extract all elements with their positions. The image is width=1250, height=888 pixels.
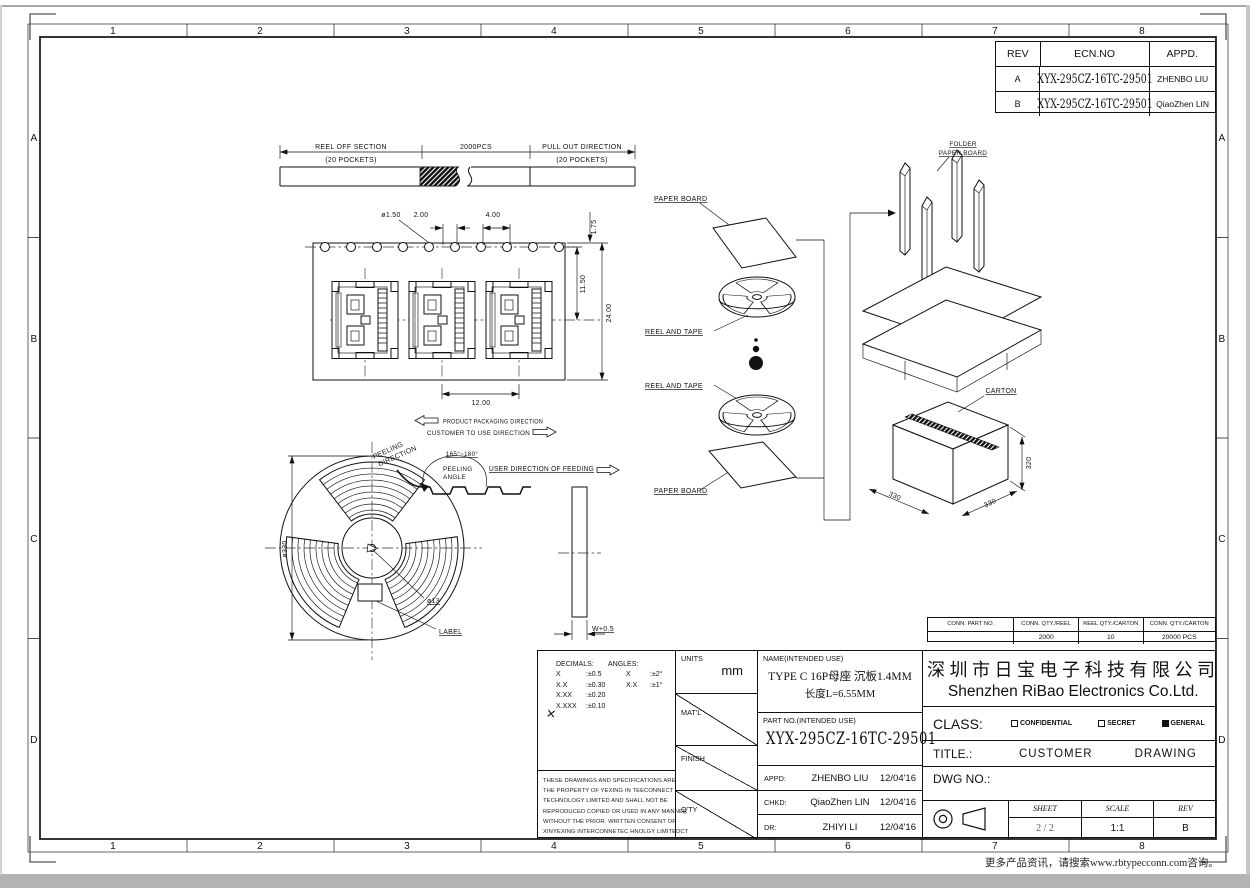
connector-pocket-2 (409, 282, 475, 359)
scale-label: SCALE (1082, 801, 1153, 818)
dwg-no-label: DWG NO.: (933, 772, 990, 786)
zone-right-b: B (1219, 334, 1226, 345)
strip-qty-label: 2000PCS (460, 144, 492, 151)
legal-line: XINYEXING INTERCONNETEC HNOLGY LIMITEDCT (543, 827, 671, 837)
decimals-header: DECIMALS: (556, 661, 608, 668)
zone-left-b: B (31, 334, 38, 345)
conn-qty-carton-value: 20000 PCS (1143, 632, 1216, 645)
chkd-label: CHKD: (764, 798, 800, 807)
zone-bottom-5: 5 (698, 841, 704, 852)
carton-label: CARTON (985, 388, 1016, 395)
units-cell: UNITS mm (676, 651, 758, 694)
sheet-label: SHEET (1009, 801, 1081, 818)
legal-line: THESE DRAWINGS AND SPECIFICATIONS ARE (543, 776, 671, 786)
dim-reel-width: W+0.5 (592, 626, 614, 633)
pull-out-pockets-label: (20 POCKETS) (556, 157, 607, 164)
folder-board-3 (952, 150, 962, 242)
conn-qty-table: CONN. PART NO. CONN. QTY./REEL REEL QTY.… (927, 617, 1216, 642)
sheet-cell: SHEET 2 / 2 (1008, 801, 1081, 839)
company-cell: 深圳市日宝电子科技有限公司 Shenzhen RiBao Electronics… (923, 651, 1217, 707)
paper-board-top-shape (713, 218, 796, 268)
product-name-line1: TYPE C 16P母座 沉板1.4MM (758, 668, 922, 684)
tol-xxx: X.XX (556, 691, 586, 702)
sheet-value: 2 / 2 (1009, 818, 1081, 839)
part-no-label: PART NO.(INTENDED USE) (758, 713, 922, 725)
confidential-checkbox (1011, 720, 1018, 727)
reel-and-tape-1-label: REEL AND TAPE (645, 329, 703, 336)
tol-xxxx: X.XXX (556, 702, 586, 713)
legal-line: REPRODUCED COPIED OR USED IN ANY MANNER (543, 807, 671, 817)
product-name-line2: 长度L=6.55MM (758, 686, 922, 701)
dr-row: DR: ZHIYI LI 12/04'16 (758, 815, 923, 839)
company-name-en: Shenzhen RiBao Electronics Co.Ltd. (927, 683, 1220, 701)
tolerance-box: DECIMALS: ANGLES: X:±0.5X:±2° X.X:±0.30X… (538, 651, 676, 771)
reel-off-pockets-label: (20 POCKETS) (325, 157, 376, 164)
peeling-angle-label-2: ANGLE (443, 474, 466, 481)
zone-left-d: D (30, 735, 38, 746)
name-cell: NAME(INTENDED USE) TYPE C 16P母座 沉板1.4MM … (758, 651, 923, 713)
dwg-no-cell: DWG NO.: (923, 767, 1217, 801)
units-label: UNITS (676, 651, 757, 663)
conn-part-no-value (928, 632, 1013, 645)
zone-bottom-1: 1 (110, 841, 116, 852)
conn-qty-reel-value: 2000 (1013, 632, 1078, 645)
folder-paper-board-label-1: FOLDER (949, 141, 976, 148)
title-label: TITLE.: (933, 747, 1019, 761)
projection-cell (923, 801, 1008, 839)
sheet-scale-rev-row: SHEET 2 / 2 SCALE 1:1 REV B (923, 801, 1217, 839)
zone-left-a: A (31, 133, 38, 144)
dim-carton-left: 330 (887, 491, 901, 502)
tol-xxx-v: :±0.20 (586, 691, 626, 702)
paper-board-bottom-shape (709, 442, 796, 488)
flow-arrow-icon (888, 210, 896, 217)
title-row: TITLE.: CUSTOMERDRAWING (923, 741, 1217, 767)
reel-and-tape-2-label: REEL AND TAPE (645, 383, 703, 390)
dr-label: DR: (764, 823, 800, 832)
title-word-1: CUSTOMER (1019, 748, 1093, 760)
pull-out-direction-label: PULL OUT DIRECTION (542, 144, 622, 151)
ecn-col-header: ECN.NO (1040, 42, 1149, 66)
dr-name: ZHIYI LI (800, 822, 880, 833)
appd-name: ZHENBO LIU (800, 773, 880, 784)
dim-hub-dia: ø13 (427, 598, 440, 605)
tol-xxxx-v: :±0.10 (586, 702, 626, 713)
reel-qty-carton-header: REEL QTY./CARTON (1078, 618, 1143, 631)
folder-board-4 (974, 180, 984, 272)
drawing-sheet: 1 2 3 4 5 6 7 8 1 2 3 4 5 6 7 8 A B C D … (0, 0, 1250, 888)
scale-value: 1:1 (1082, 818, 1153, 839)
reel-label-text: LABEL (439, 629, 462, 636)
class-confidential: CONFIDENTIAL (1020, 720, 1072, 727)
dim-carton-right: 330 (983, 498, 997, 510)
angles-header: ANGLES: (608, 661, 638, 668)
rev-a: A (996, 67, 1039, 91)
zone-bottom-2: 2 (257, 841, 263, 852)
zone-top-5: 5 (698, 26, 704, 37)
chkd-date: 12/04'16 (880, 797, 916, 808)
footer-note: 更多产品资讯，请搜索www.rbtypecconn.com咨询。 (985, 855, 1219, 870)
reel-label-rect (358, 584, 382, 601)
part-no-cell: PART NO.(INTENDED USE) XYX-295CZ-16TC-29… (758, 713, 923, 766)
finish-cell: FINISH (676, 746, 758, 791)
legal-line: TECHNOLOGY LIMITED AND SHALL NOT BE (543, 796, 671, 806)
table-row: A XYX-295CZ-16TC-29501 ZHENBO LIU (996, 66, 1215, 91)
paper-board-top-label: PAPER BOARD (654, 196, 707, 203)
check-mark: ✕ (545, 706, 557, 721)
reel-side-view: W+0.5 (554, 487, 614, 640)
dim-12: 12.00 (471, 400, 490, 407)
conn-part-no-header: CONN. PART NO. (928, 618, 1013, 631)
zone-top-3: 3 (404, 26, 410, 37)
peeling-angle-range: 165°~180° (446, 450, 479, 458)
material-cell: MAT'L (676, 694, 758, 746)
zone-bottom-3: 3 (404, 841, 410, 852)
rev-cell: REV B (1153, 801, 1217, 839)
zone-top-2: 2 (257, 26, 263, 37)
dim-4mm: 4.00 (486, 212, 501, 219)
user-feeding-direction-label: USER DIRECTION OF FEEDING (489, 466, 594, 473)
scale-cell: SCALE 1:1 (1081, 801, 1153, 839)
dim-reel-dia: ø330 (282, 540, 289, 557)
tol-axx-v: :±1° (650, 681, 662, 692)
rev-label: REV (1154, 801, 1217, 818)
company-name-cn: 深圳市日宝电子科技有限公司 (927, 656, 1220, 682)
qty-cell: Q'TY (676, 791, 758, 839)
zone-bottom-8: 8 (1139, 841, 1145, 852)
title-block: DECIMALS: ANGLES: X:±0.5X:±2° X.X:±0.30X… (537, 650, 1216, 838)
dim-175: 1.75 (591, 220, 598, 235)
product-packaging-direction-label: PRODUCT PACKAGING DIRECTION (443, 419, 543, 426)
dim-hole-dia: ø1.50 (381, 212, 400, 219)
tol-axx: X.X (626, 681, 650, 692)
zone-bottom-6: 6 (845, 841, 851, 852)
appd-row: APPD: ZHENBO LIU 12/04'16 (758, 766, 923, 791)
conn-qty-reel-header: CONN. QTY./REEL (1013, 618, 1078, 631)
dim-1150: 11.50 (580, 275, 587, 294)
appd-col-header: APPD. (1149, 42, 1215, 66)
reel-front-view: ø330 ø13 LABEL PEELING DIRECTION 165°~18… (265, 437, 619, 660)
zone-right-d: D (1218, 735, 1226, 746)
title-word-2: DRAWING (1135, 748, 1197, 760)
material-label: MAT'L (676, 694, 757, 717)
tape-strip-diagram: REEL OFF SECTION (20 POCKETS) 2000PCS PU… (280, 144, 635, 186)
legal-notice: THESE DRAWINGS AND SPECIFICATIONS ARE TH… (538, 771, 676, 839)
folder-board-1 (900, 163, 910, 255)
class-row: CLASS: CONFIDENTIAL SECRET GENERAL (923, 707, 1217, 741)
customer-use-direction-label: CUSTOMER TO USE DIRECTION (427, 430, 530, 437)
carton-packing: FOLDER PAPER BOARD CARTON 330 330 320 (863, 141, 1041, 516)
zone-left-c: C (30, 534, 38, 545)
feeding-arrow-icon (597, 465, 619, 475)
reel-and-tape-1-shape (717, 277, 797, 317)
appd-a: ZHENBO LIU (1149, 67, 1215, 91)
reel-off-section-label: REEL OFF SECTION (315, 144, 387, 151)
conn-qty-carton-header: CONN. QTY./CARTON (1143, 618, 1216, 631)
zone-bottom-7: 7 (992, 841, 998, 852)
appd-date: 12/04'16 (880, 773, 916, 784)
ecn-b: XYX-295CZ-16TC-29501 (1037, 97, 1152, 112)
dim-24: 24.00 (606, 303, 613, 322)
zone-top-7: 7 (992, 26, 998, 37)
dim-2mm: 2.00 (414, 212, 429, 219)
right-direction-arrow-icon (533, 427, 556, 437)
rev-b: B (996, 92, 1039, 116)
units-value: mm (721, 663, 743, 678)
folder-paper-board-label-2: PAPER BOARD (939, 150, 987, 157)
tol-ax: X (626, 670, 650, 681)
name-label: NAME(INTENDED USE) (758, 651, 922, 663)
carrier-tape-top-view: ø1.50 2.00 4.00 1.75 11.50 24.00 12.00 P… (305, 212, 613, 437)
table-row: 2000 10 20000 PCS (928, 631, 1215, 645)
legal-line: THE PROPERTY OF YEXING IN TEECONNECT (543, 786, 671, 796)
third-angle-projection-icon (923, 801, 1008, 838)
paper-board-bottom-label: PAPER BOARD (654, 488, 707, 495)
zone-top-4: 4 (551, 26, 557, 37)
qty-label: Q'TY (676, 791, 757, 814)
packing-flow: PAPER BOARD REEL AND TAPE REEL AND TAPE … (645, 196, 896, 520)
zone-bottom-4: 4 (551, 841, 557, 852)
zone-right-c: C (1218, 534, 1226, 545)
zone-top-1: 1 (110, 26, 116, 37)
table-row: B XYX-295CZ-16TC-29501 QiaoZhen LIN (996, 91, 1215, 116)
secret-checkbox (1098, 720, 1105, 727)
class-general: GENERAL (1171, 720, 1205, 727)
rev-value: B (1154, 818, 1217, 839)
ecn-a: XYX-295CZ-16TC-29501 (1037, 72, 1152, 87)
class-secret: SECRET (1107, 720, 1135, 727)
class-label: CLASS: (933, 716, 1011, 732)
general-checkbox (1162, 720, 1169, 727)
appd-b: QiaoZhen LIN (1149, 92, 1215, 116)
zone-right-a: A (1219, 133, 1226, 144)
reel-qty-carton-value: 10 (1078, 632, 1143, 645)
dr-date: 12/04'16 (880, 822, 916, 833)
tol-xx: X.X (556, 681, 586, 692)
chkd-name: QiaoZhen LIN (800, 797, 880, 808)
tol-ax-v: :±2° (650, 670, 662, 681)
finish-label: FINISH (676, 746, 757, 763)
legal-line: WITHOUT THE PRIOR. WRITTEN CONSENT OF (543, 817, 671, 827)
connector-pocket-3 (486, 282, 552, 359)
part-number: XYX-295CZ-16TC-29501 (760, 729, 891, 748)
rev-col-header: REV (996, 42, 1040, 66)
left-direction-arrow-icon (415, 416, 438, 426)
tol-x-v: :±0.5 (586, 670, 626, 681)
appd-label: APPD: (764, 774, 800, 783)
tol-x: X (556, 670, 586, 681)
tol-xx-v: :±0.30 (586, 681, 626, 692)
zone-top-6: 6 (845, 26, 851, 37)
revision-table: REV ECN.NO APPD. A XYX-295CZ-16TC-29501 … (995, 41, 1216, 113)
peeling-angle-label-1: PEELING (443, 466, 472, 473)
connector-pocket-1 (332, 282, 398, 359)
chkd-row: CHKD: QiaoZhen LIN 12/04'16 (758, 791, 923, 815)
zone-top-8: 8 (1139, 26, 1145, 37)
dim-carton-height: 320 (1026, 457, 1033, 470)
reel-and-tape-2-shape (717, 395, 797, 435)
